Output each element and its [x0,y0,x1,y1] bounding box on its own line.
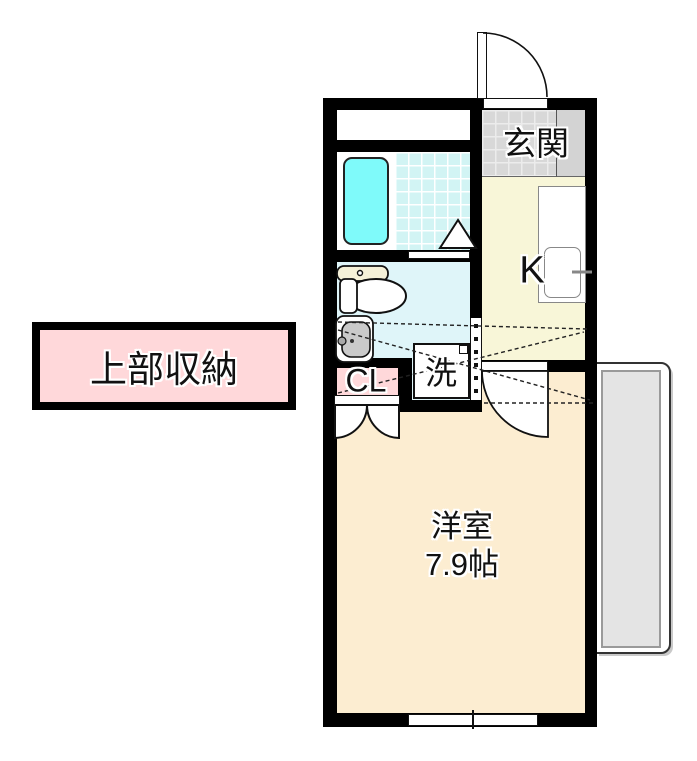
closet-label: CL [346,363,387,400]
washroom-folding-door [470,318,482,400]
upper-storage-callout: 上部収納 [32,322,296,410]
entrance-label: 玄関 [503,117,569,165]
kitchen-door-leaf [481,361,548,371]
western-room-floor-upper [482,372,585,412]
bathroom-top-storage [337,110,470,140]
western-room-name: 洋室 [425,508,499,546]
entrance-threshold [483,98,548,109]
balcony-floor [601,370,661,648]
bathtub [343,157,389,245]
entrance-door-arc [483,33,547,97]
laundry-label: 洗 [425,348,457,394]
washer-tap-box [459,345,468,354]
entrance-door-leaf [477,32,487,99]
western-room-size: 7.9帖 [425,546,499,584]
washroom-floor [337,262,412,358]
upper-storage-label: 上部収納 [90,339,238,393]
bathroom-door-threshold [408,251,470,259]
kitchen-sink [544,247,581,298]
floor-plan: 玄関 K 洗 CL 洋室 7.9帖 上部収納 [0,0,697,761]
balcony [595,362,671,654]
western-room-label: 洋室 7.9帖 [425,508,499,584]
kitchen-label: K [519,250,544,293]
south-window [408,714,538,726]
bathroom-floor [395,152,470,250]
